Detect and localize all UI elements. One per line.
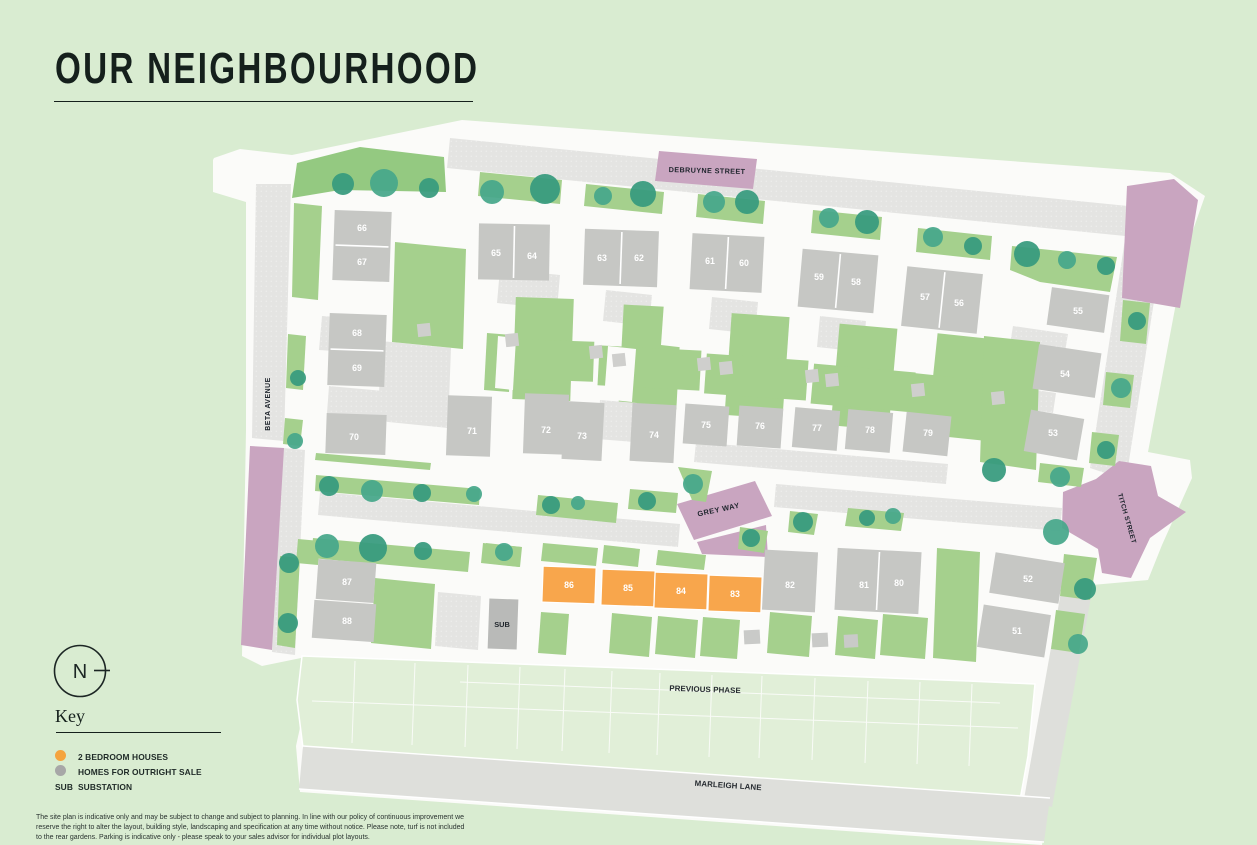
svg-text:66: 66 xyxy=(357,223,367,233)
svg-text:60: 60 xyxy=(739,258,749,268)
svg-text:SUB: SUB xyxy=(494,620,510,629)
svg-text:51: 51 xyxy=(1012,626,1022,636)
svg-text:69: 69 xyxy=(352,363,362,373)
svg-text:63: 63 xyxy=(597,253,607,263)
svg-text:84: 84 xyxy=(676,586,686,596)
svg-text:N: N xyxy=(73,661,87,683)
svg-text:82: 82 xyxy=(785,580,795,590)
svg-text:76: 76 xyxy=(755,421,765,431)
svg-text:53: 53 xyxy=(1048,428,1058,438)
svg-text:58: 58 xyxy=(851,277,861,287)
svg-text:56: 56 xyxy=(954,298,964,308)
svg-text:81: 81 xyxy=(859,580,869,590)
svg-text:52: 52 xyxy=(1023,574,1033,584)
svg-text:79: 79 xyxy=(923,428,933,438)
svg-text:88: 88 xyxy=(342,616,352,626)
svg-text:57: 57 xyxy=(920,292,930,302)
svg-text:61: 61 xyxy=(705,256,715,266)
svg-text:75: 75 xyxy=(701,420,711,430)
svg-text:85: 85 xyxy=(623,583,633,593)
svg-text:80: 80 xyxy=(894,578,904,588)
svg-text:59: 59 xyxy=(814,272,824,282)
svg-text:62: 62 xyxy=(634,253,644,263)
svg-text:54: 54 xyxy=(1060,369,1070,379)
svg-text:78: 78 xyxy=(865,425,875,435)
svg-text:BETA AVENUE: BETA AVENUE xyxy=(265,377,272,430)
svg-text:64: 64 xyxy=(527,251,537,261)
svg-text:72: 72 xyxy=(541,425,551,435)
svg-text:67: 67 xyxy=(357,257,367,267)
svg-text:87: 87 xyxy=(342,577,352,587)
svg-text:74: 74 xyxy=(649,430,659,440)
svg-text:71: 71 xyxy=(467,426,477,436)
svg-text:83: 83 xyxy=(730,589,740,599)
svg-text:68: 68 xyxy=(352,328,362,338)
svg-text:70: 70 xyxy=(349,432,359,442)
svg-text:86: 86 xyxy=(564,580,574,590)
svg-text:65: 65 xyxy=(491,248,501,258)
svg-text:73: 73 xyxy=(577,431,587,441)
svg-text:55: 55 xyxy=(1073,306,1083,316)
svg-text:77: 77 xyxy=(812,423,822,433)
